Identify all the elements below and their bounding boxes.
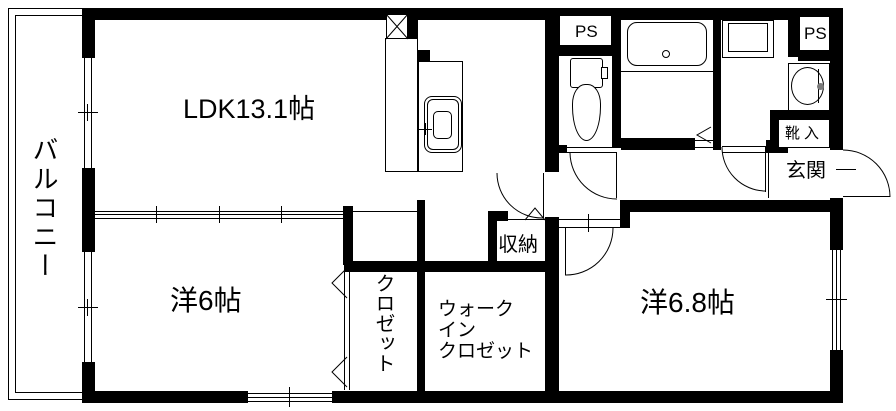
entrance-label: 玄関 xyxy=(786,161,826,183)
door-arc-ldk xyxy=(497,173,543,218)
walkin-closet-label-line1: ウォーク xyxy=(438,300,514,321)
ldk-label: LDK13.1帖 xyxy=(183,95,315,124)
pipe-space-right-label: PS xyxy=(804,25,827,43)
pipe-space-top-label: PS xyxy=(575,23,598,41)
storage-label: 収納 xyxy=(498,235,538,257)
closet-label: クロゼット xyxy=(369,273,398,373)
bath-fold-door-icon xyxy=(697,127,711,143)
door-arc-front-door xyxy=(843,150,890,197)
bedroom1-label: 洋6帖 xyxy=(170,286,242,316)
walkin-closet-label-line2: イン xyxy=(438,321,476,342)
floor-plan: バルコニー LDK13.1帖 洋6帖 洋6.8帖 クロゼット ウォーク イン ク… xyxy=(0,0,896,411)
shoe-box-label: 靴入 xyxy=(785,126,823,142)
duct-x-icon xyxy=(386,14,408,39)
door-arc-bedroom2 xyxy=(565,228,613,275)
closet-fold-door-lower-icon xyxy=(332,357,347,387)
bedroom2-label: 洋6.8帖 xyxy=(640,288,735,318)
door-arc-washroom xyxy=(722,147,765,191)
balcony-label: バルコニー xyxy=(26,136,63,281)
walkin-closet-label-line3: クロゼット xyxy=(438,342,533,363)
door-arc-toilet xyxy=(570,153,617,199)
closet-fold-door-upper-icon xyxy=(332,268,347,298)
